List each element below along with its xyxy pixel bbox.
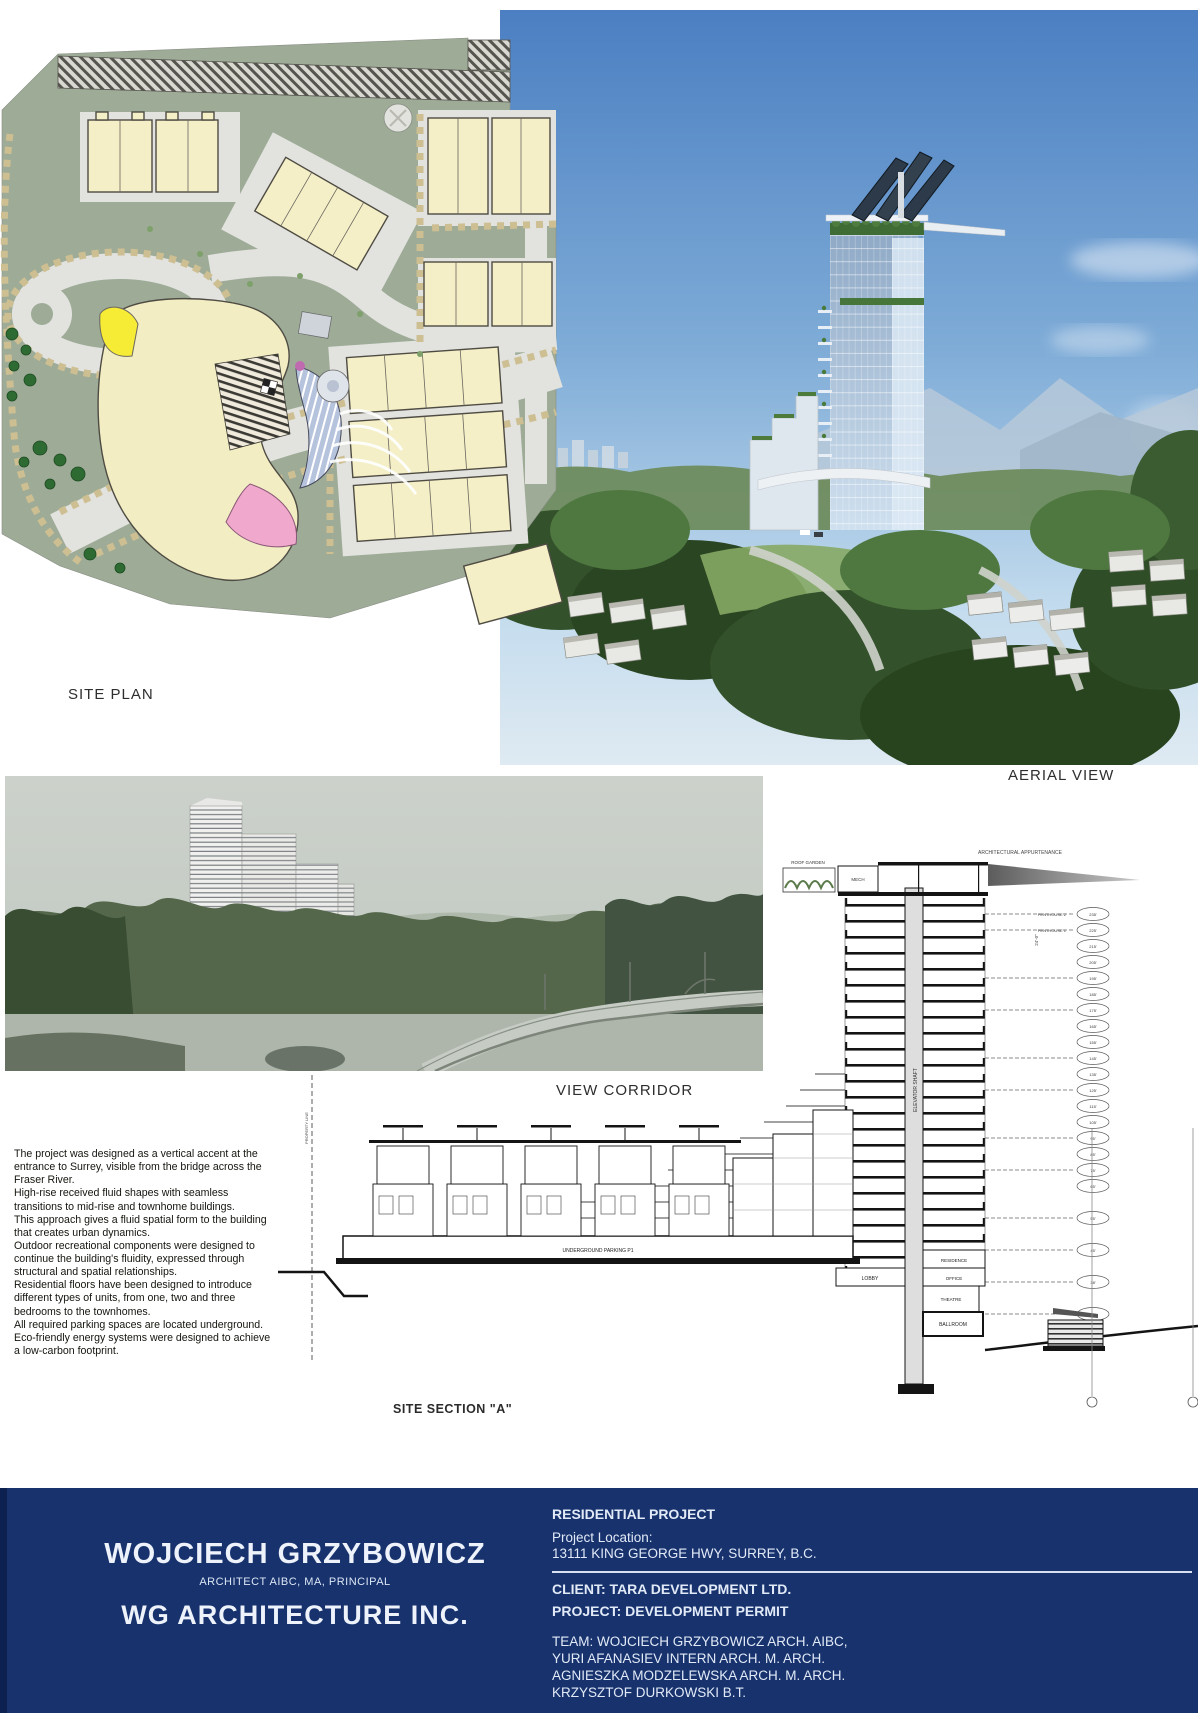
project-line: PROJECT: DEVELOPMENT PERMIT	[552, 1603, 1192, 1621]
location-value: 13111 KING GEORGE HWY, SURREY, B.C.	[552, 1546, 1192, 1563]
svg-text:185': 185'	[1089, 992, 1097, 997]
description-paragraph: High-rise received fluid shapes with sea…	[14, 1187, 278, 1213]
height-dim-label: 24'-0"	[1034, 934, 1039, 946]
townhome-section: UNDERGROUND PARKING P1	[336, 1110, 860, 1264]
penthouse-upper-label: PENTHOUSE 2	[1038, 912, 1067, 917]
svg-text:38': 38'	[1090, 1280, 1095, 1285]
roof-garden-label: ROOF GARDEN	[791, 860, 825, 865]
svg-text:215': 215'	[1089, 944, 1097, 949]
site-plan-drawing	[0, 14, 570, 626]
elevation-leaders	[985, 914, 1073, 1314]
client-line: CLIENT: TARA DEVELOPMENT LTD.	[552, 1581, 1192, 1599]
svg-text:205': 205'	[1089, 960, 1097, 965]
project-type: RESIDENTIAL PROJECT	[552, 1506, 1192, 1524]
description-paragraph: The project was designed as a vertical a…	[14, 1148, 278, 1187]
svg-text:75': 75'	[1090, 1168, 1095, 1173]
svg-text:125': 125'	[1089, 1088, 1097, 1093]
svg-text:65': 65'	[1090, 1184, 1095, 1189]
description-paragraph: Residential floors have been designed to…	[14, 1279, 278, 1318]
svg-text:85': 85'	[1090, 1152, 1095, 1157]
architect-title: ARCHITECT AIBC, MA, PRINCIPAL	[70, 1576, 520, 1588]
view-corridor-photo	[5, 776, 763, 1071]
svg-text:105': 105'	[1089, 1120, 1097, 1125]
svg-text:95': 95'	[1090, 1136, 1095, 1141]
description-paragraph: Eco-friendly energy systems were designe…	[14, 1332, 278, 1358]
architect-name: WOJCIECH GRZYBOWICZ	[70, 1538, 520, 1571]
description-paragraph: This approach gives a fluid spatial form…	[14, 1214, 278, 1240]
svg-text:225': 225'	[1089, 928, 1097, 933]
residence-label: RESIDENCE	[941, 1258, 967, 1263]
mech-label: MECH	[851, 877, 864, 882]
svg-text:55': 55'	[1090, 1216, 1095, 1221]
team-line: YURI AFANASIEV INTERN ARCH. M. ARCH.	[552, 1651, 1192, 1668]
gridlines	[1087, 1128, 1198, 1407]
firm-name: WG ARCHITECTURE INC.	[70, 1600, 520, 1631]
appurtenance-label: ARCHITECTURAL APPURTENANCE	[978, 850, 1063, 856]
title-block-footer: WOJCIECH GRZYBOWICZ ARCHITECT AIBC, MA, …	[0, 1488, 1198, 1713]
aerial-view-rendering	[500, 10, 1198, 765]
lobby-label: LOBBY	[862, 1276, 879, 1282]
svg-text:175': 175'	[1089, 1008, 1097, 1013]
presentation-board: ELEVATOR SHAFT ROOF GARDEN MECH ARCHITEC…	[0, 0, 1198, 1713]
site-section-label: SITE SECTION "A"	[393, 1402, 512, 1416]
location-label: Project Location:	[552, 1530, 1192, 1547]
view-corridor-label: VIEW CORRIDOR	[556, 1082, 693, 1099]
team-line: KRZYSZTOF DURKOWSKI B.T.	[552, 1685, 1192, 1702]
office-label: OFFICE	[946, 1276, 963, 1281]
description-paragraph: All required parking spaces are located …	[14, 1319, 278, 1332]
elevation-bubbles: 235' 225' 215' 205' 195' 185' 175' 165' …	[1077, 908, 1109, 1321]
project-info-block: RESIDENTIAL PROJECT Project Location: 13…	[552, 1506, 1192, 1702]
ballroom-label: BALLROOM	[939, 1322, 967, 1328]
svg-text:115': 115'	[1089, 1104, 1096, 1109]
underground-parking-label: UNDERGROUND PARKING P1	[562, 1248, 633, 1254]
footer-divider	[552, 1571, 1192, 1573]
svg-text:195': 195'	[1089, 976, 1097, 981]
svg-text:165': 165'	[1089, 1024, 1097, 1029]
penthouse-lower-label: PENTHOUSE 1	[1038, 928, 1067, 933]
project-description: The project was designed as a vertical a…	[14, 1148, 278, 1358]
team-line: AGNIESZKA MODZELEWSKA ARCH. M. ARCH.	[552, 1668, 1192, 1685]
svg-text:145': 145'	[1089, 1056, 1097, 1061]
svg-text:235': 235'	[1089, 912, 1097, 917]
theatre-label: THEATRE	[941, 1297, 962, 1302]
elevator-shaft-label: ELEVATOR SHAFT	[913, 1068, 919, 1112]
svg-text:45': 45'	[1090, 1248, 1095, 1253]
property-line-label: PROPERTY LINE	[304, 1112, 309, 1144]
appurtenance-wing	[988, 864, 1140, 886]
team-line: TEAM: WOJCIECH GRZYBOWICZ ARCH. AIBC,	[552, 1634, 1192, 1651]
footer-edge-strip	[0, 1488, 7, 1713]
svg-text:155': 155'	[1089, 1040, 1097, 1045]
description-paragraph: Outdoor recreational components were des…	[14, 1240, 278, 1279]
svg-text:135': 135'	[1089, 1072, 1097, 1077]
grade-line-left	[278, 1272, 368, 1296]
aerial-view-label: AERIAL VIEW	[1008, 767, 1114, 784]
outdoor-terraces	[1043, 1308, 1105, 1351]
site-plan-label: SITE PLAN	[68, 686, 154, 703]
